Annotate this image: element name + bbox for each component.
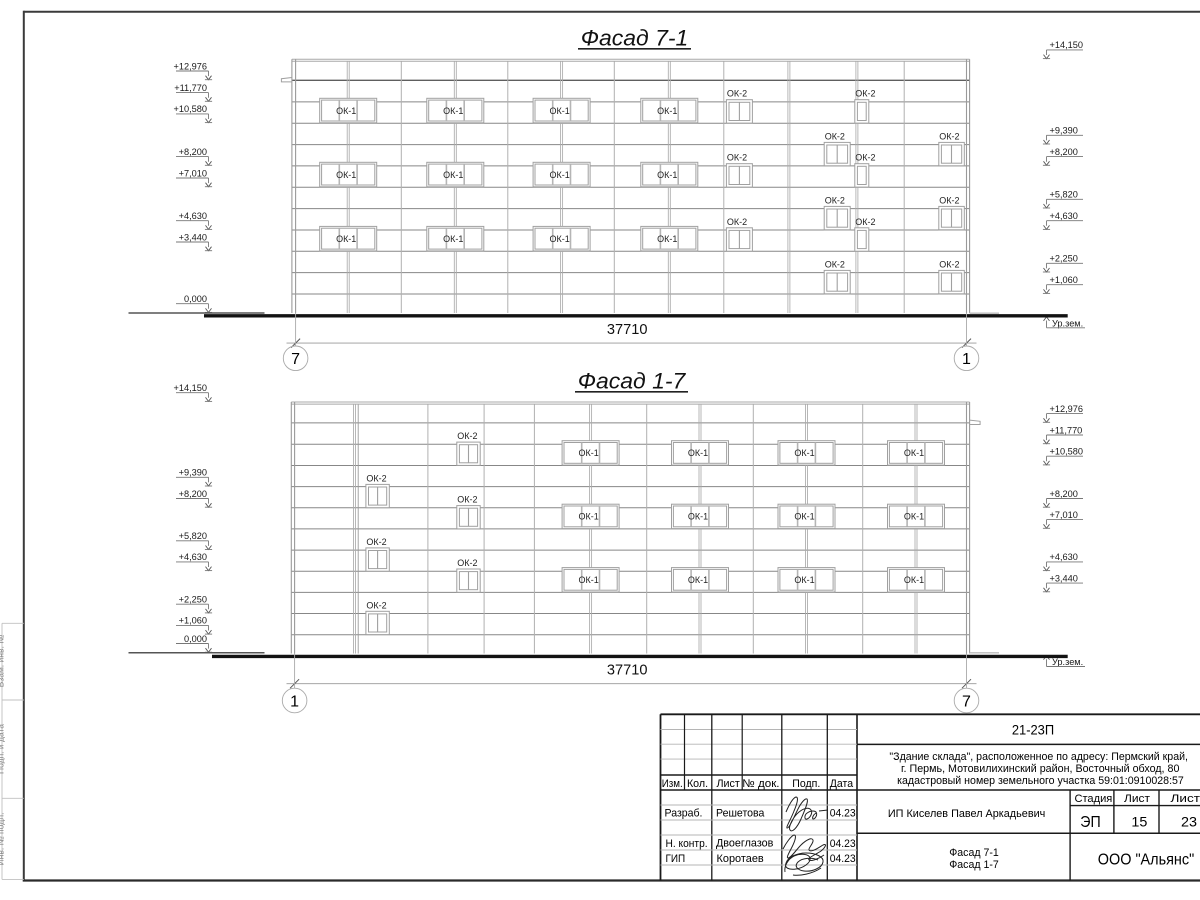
svg-text:+4,630: +4,630	[1050, 552, 1078, 562]
svg-text:ОК-1: ОК-1	[904, 448, 924, 458]
svg-text:ОК-1: ОК-1	[688, 512, 708, 522]
svg-text:ОК-2: ОК-2	[939, 195, 959, 205]
svg-text:Листов: Листов	[1171, 793, 1200, 805]
svg-text:+9,390: +9,390	[179, 468, 207, 478]
svg-text:+8,200: +8,200	[1050, 147, 1078, 157]
svg-text:Фасад 1-7: Фасад 1-7	[578, 368, 687, 393]
svg-text:7: 7	[291, 351, 300, 368]
svg-text:+1,060: +1,060	[1050, 275, 1078, 285]
svg-text:Двоеглазов: Двоеглазов	[716, 838, 774, 850]
svg-text:+14,150: +14,150	[1050, 40, 1083, 50]
svg-text:+11,770: +11,770	[1050, 425, 1083, 435]
svg-text:Ур.зем.: Ур.зем.	[1052, 318, 1083, 328]
svg-text:ОК-1: ОК-1	[904, 575, 924, 585]
svg-text:ОК-1: ОК-1	[549, 170, 569, 180]
svg-text:г. Пермь, Мотовилихинский райо: г. Пермь, Мотовилихинский район, Восточн…	[901, 763, 1180, 775]
svg-text:ОК-1: ОК-1	[794, 448, 814, 458]
svg-text:37710: 37710	[607, 321, 648, 338]
svg-text:ОК-1: ОК-1	[336, 170, 356, 180]
svg-text:04.23: 04.23	[830, 808, 856, 820]
svg-text:Подп.: Подп.	[792, 778, 820, 790]
svg-text:Кол.: Кол.	[687, 778, 708, 790]
svg-text:+12,976: +12,976	[174, 61, 207, 71]
svg-text:0,000: 0,000	[184, 294, 207, 304]
svg-text:Решетова: Решетова	[716, 807, 765, 819]
svg-text:0,000: 0,000	[184, 634, 207, 644]
svg-text:ОК-2: ОК-2	[457, 558, 477, 568]
svg-text:ОК-1: ОК-1	[549, 106, 569, 116]
svg-text:15: 15	[1131, 814, 1147, 830]
svg-text:1: 1	[962, 351, 971, 368]
svg-text:+1,060: +1,060	[179, 616, 207, 626]
svg-text:ОК-2: ОК-2	[457, 495, 477, 505]
svg-text:ОК-1: ОК-1	[549, 234, 569, 244]
svg-text:ОК-1: ОК-1	[657, 170, 677, 180]
svg-text:Ур.зем.: Ур.зем.	[1052, 657, 1083, 667]
svg-text:ОК-2: ОК-2	[727, 153, 747, 163]
svg-text:ОК-1: ОК-1	[657, 106, 677, 116]
svg-text:ООО "Альянс": ООО "Альянс"	[1098, 852, 1194, 869]
svg-text:ОК-1: ОК-1	[336, 234, 356, 244]
svg-text:ЭП: ЭП	[1080, 814, 1100, 831]
svg-text:Стадия: Стадия	[1074, 793, 1112, 805]
svg-text:ОК-2: ОК-2	[366, 537, 386, 547]
svg-text:ОК-1: ОК-1	[688, 575, 708, 585]
svg-text:ОК-1: ОК-1	[443, 234, 463, 244]
svg-text:+5,820: +5,820	[1050, 190, 1078, 200]
svg-text:№ док.: № док.	[742, 778, 779, 790]
svg-text:ОК-2: ОК-2	[457, 431, 477, 441]
svg-text:Взам. инв. №: Взам. инв. №	[0, 635, 6, 688]
svg-text:Фасад 7-1: Фасад 7-1	[949, 847, 999, 859]
svg-text:+7,010: +7,010	[1050, 510, 1078, 520]
svg-text:ОК-2: ОК-2	[366, 600, 386, 610]
svg-text:ОК-2: ОК-2	[825, 195, 845, 205]
svg-text:ОК-2: ОК-2	[727, 89, 747, 99]
svg-text:ОК-1: ОК-1	[336, 106, 356, 116]
svg-text:ОК-1: ОК-1	[443, 170, 463, 180]
svg-text:ОК-2: ОК-2	[855, 153, 875, 163]
svg-text:Изм.: Изм.	[662, 778, 683, 790]
svg-text:+14,150: +14,150	[174, 383, 207, 393]
svg-text:7: 7	[962, 693, 971, 710]
svg-text:Дата: Дата	[830, 778, 854, 790]
svg-text:Лист: Лист	[716, 778, 739, 790]
svg-text:ИП Киселев Павел Аркадьевич: ИП Киселев Павел Аркадьевич	[888, 808, 1045, 820]
svg-text:ОК-1: ОК-1	[794, 512, 814, 522]
svg-text:+3,440: +3,440	[1050, 573, 1078, 583]
svg-text:+4,630: +4,630	[179, 552, 207, 562]
svg-text:23: 23	[1181, 814, 1197, 830]
svg-text:ОК-2: ОК-2	[825, 259, 845, 269]
svg-text:Лист: Лист	[1124, 793, 1150, 805]
svg-text:Подп. и дата: Подп. и дата	[0, 724, 6, 774]
svg-text:ОК-1: ОК-1	[657, 234, 677, 244]
svg-text:Фасад 7-1: Фасад 7-1	[581, 25, 689, 50]
svg-text:+3,440: +3,440	[179, 232, 207, 242]
svg-text:+8,200: +8,200	[179, 147, 207, 157]
svg-text:Фасад 1-7: Фасад 1-7	[949, 859, 999, 871]
svg-text:ОК-1: ОК-1	[578, 512, 598, 522]
svg-text:+10,580: +10,580	[174, 104, 207, 114]
svg-text:ОК-2: ОК-2	[939, 259, 959, 269]
svg-text:Инв. № подл.: Инв. № подл.	[0, 813, 6, 866]
svg-text:04.23: 04.23	[830, 853, 856, 865]
svg-text:ОК-2: ОК-2	[855, 217, 875, 227]
svg-text:"Здание склада", расположенное: "Здание склада", расположенное по адресу…	[889, 751, 1188, 763]
svg-text:+8,200: +8,200	[1050, 489, 1078, 499]
svg-text:Н. контр.: Н. контр.	[666, 838, 708, 850]
svg-text:Коротаев: Коротаев	[717, 853, 764, 865]
svg-text:ГИП: ГИП	[666, 853, 686, 865]
svg-text:21-23П: 21-23П	[1012, 723, 1054, 738]
svg-text:04.23: 04.23	[830, 838, 856, 850]
svg-text:+4,630: +4,630	[1050, 211, 1078, 221]
svg-text:ОК-2: ОК-2	[939, 131, 959, 141]
svg-text:1: 1	[290, 693, 299, 710]
svg-text:ОК-2: ОК-2	[366, 473, 386, 483]
svg-text:Разраб.: Разраб.	[665, 807, 703, 819]
svg-text:ОК-2: ОК-2	[727, 217, 747, 227]
svg-text:ОК-1: ОК-1	[578, 448, 598, 458]
svg-text:ОК-2: ОК-2	[855, 89, 875, 99]
svg-text:+2,250: +2,250	[179, 595, 207, 605]
svg-text:+9,390: +9,390	[1050, 126, 1078, 136]
svg-text:+4,630: +4,630	[179, 211, 207, 221]
svg-text:+10,580: +10,580	[1050, 447, 1083, 457]
svg-text:+11,770: +11,770	[174, 83, 207, 93]
svg-text:ОК-1: ОК-1	[443, 106, 463, 116]
svg-text:кадастровый номер земельного у: кадастровый номер земельного участка 59:…	[897, 775, 1184, 787]
svg-text:ОК-1: ОК-1	[578, 575, 598, 585]
svg-text:+12,976: +12,976	[1050, 404, 1083, 414]
svg-text:ОК-1: ОК-1	[904, 512, 924, 522]
svg-text:+8,200: +8,200	[179, 489, 207, 499]
svg-text:ОК-2: ОК-2	[825, 131, 845, 141]
svg-text:+5,820: +5,820	[179, 531, 207, 541]
svg-text:ОК-1: ОК-1	[794, 575, 814, 585]
svg-text:+2,250: +2,250	[1050, 254, 1078, 264]
svg-text:ОК-1: ОК-1	[688, 448, 708, 458]
svg-text:37710: 37710	[607, 662, 648, 679]
svg-text:+7,010: +7,010	[179, 168, 207, 178]
